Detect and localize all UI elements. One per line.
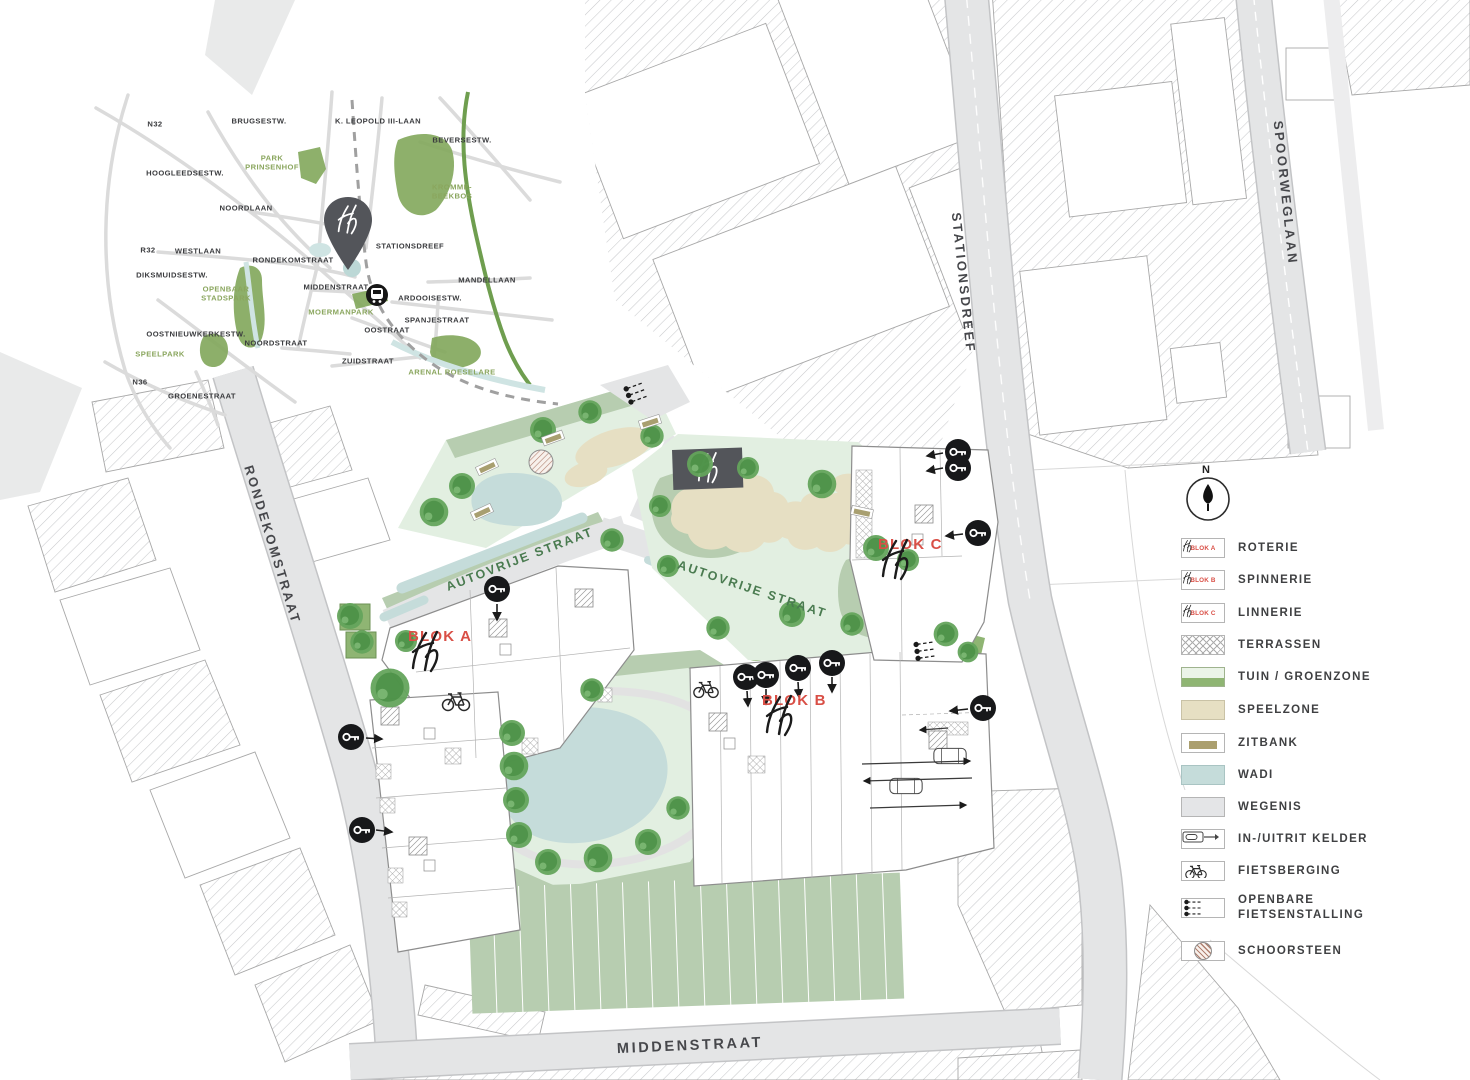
legend-item-terrassen: TERRASSEN: [1181, 635, 1322, 655]
legend-item-wadi: WADI: [1181, 765, 1274, 785]
inset-label: NOORDSTRAAT: [245, 338, 308, 347]
legend-swatch-terrassen: [1181, 635, 1225, 655]
logo-signature-icon: [762, 692, 798, 742]
inset-label: SPANJESTRAAT: [405, 315, 470, 324]
inset-label: MIDDENSTRAAT: [304, 282, 369, 291]
inset-label: N32: [147, 119, 162, 128]
legend-item-wegenis: WEGENIS: [1181, 797, 1302, 817]
inset-label: MANDELLAAN: [458, 275, 516, 284]
blok-c-label: BLOK C: [878, 536, 943, 553]
inset-label: BEVERSESTW.: [432, 135, 491, 144]
compass-icon: [1182, 466, 1234, 526]
inset-label: SPEELPARK: [135, 349, 184, 358]
inset-label: KROMME- BEEKBOS: [432, 183, 472, 202]
inset-label: N36: [132, 377, 147, 386]
key-entrance-icon: [970, 695, 996, 721]
garage-entry-icon: [1182, 830, 1222, 844]
legend-swatch-fietsberging: [1181, 861, 1225, 881]
logo-signature-icon: [878, 536, 914, 586]
legend-item-linnerie: BLOK C LINNERIE: [1181, 603, 1303, 623]
legend-swatch-tuin: [1181, 667, 1225, 687]
legend-swatch-speelzone: [1181, 700, 1225, 720]
inset-label: BRUGSESTW.: [231, 116, 286, 125]
legend-item-spinnerie: BLOK B SPINNERIE: [1181, 570, 1313, 590]
inset-label: PARK PRINSENHOF: [245, 154, 299, 173]
inset-label: GROENESTRAAT: [168, 391, 236, 400]
legend-item-tuin-groenzone: TUIN / GROENZONE: [1181, 667, 1371, 687]
inset-label: OPENBAAR STADSPARK: [201, 285, 251, 304]
legend-item-roterie: BLOK A ROTERIE: [1181, 538, 1299, 558]
legend-item-schoorsteen: SCHOORSTEEN: [1181, 941, 1342, 961]
inset-label: OOSTRAAT: [364, 325, 409, 334]
legend-swatch-blok-b: BLOK B: [1181, 570, 1225, 590]
inset-label: WESTLAAN: [175, 246, 221, 255]
inset-label: RONDEKOMSTRAAT: [253, 255, 334, 264]
legend-item-openbare-fietsenstalling: OPENBARE FIETSENSTALLING: [1181, 893, 1364, 923]
legend-swatch-schoorsteen: [1181, 941, 1225, 961]
legend-swatch-wegenis: [1181, 797, 1225, 817]
logo-signature-icon: [1182, 604, 1193, 619]
legend-item-speelzone: SPEELZONE: [1181, 700, 1320, 720]
inset-label: DIKSMUIDSESTW.: [136, 270, 208, 279]
key-entrance-icon: [753, 662, 779, 688]
logo-signature-icon: [1182, 571, 1193, 586]
bike-rack-icon: [1182, 899, 1208, 917]
legend-swatch-wadi: [1181, 765, 1225, 785]
site: [340, 365, 998, 1014]
inset-label: ARENAL ROESELARE: [408, 367, 495, 376]
inset-label: HOOGLEEDSESTW.: [146, 168, 224, 177]
legend-item-zitbank: ZITBANK: [1181, 733, 1298, 753]
legend-swatch-fietsenstalling: [1181, 898, 1225, 918]
inset-label: ZUIDSTRAAT: [342, 356, 394, 365]
key-entrance-icon: [965, 520, 991, 546]
inset-label: ARDOOISESTW.: [398, 293, 462, 302]
legend-swatch-kelder: [1181, 829, 1225, 849]
legend-swatch-blok-a: BLOK A: [1181, 538, 1225, 558]
inset-label: K. LEOPOLD III-LAAN: [335, 116, 421, 125]
legend-item-in-uitrit-kelder: IN-/UITRIT KELDER: [1181, 829, 1368, 849]
inset-label: R32: [140, 245, 155, 254]
inset-label: STATIONSDREEF: [376, 241, 444, 250]
inset-label: NOORDLAAN: [220, 203, 273, 212]
blok-a-label: BLOK A: [408, 628, 472, 645]
legend-swatch-blok-c: BLOK C: [1181, 603, 1225, 623]
key-entrance-icon: [819, 650, 845, 676]
legend-swatch-zitbank: [1181, 733, 1225, 753]
site-plan-page: { "inset": { "labels": ["N32","BRUGSESTW…: [0, 0, 1470, 1080]
blok-b-label: BLOK B: [762, 692, 827, 709]
legend-item-fietsberging: FIETSBERGING: [1181, 861, 1341, 881]
inset-label: MOERMANPARK: [308, 307, 373, 316]
key-entrance-icon: [349, 817, 375, 843]
inset-label: OOSTNIEUWKERKESTW.: [146, 329, 245, 338]
logo-signature-icon: [1182, 539, 1193, 554]
bicycle-icon: [1182, 862, 1210, 878]
train-station-icon: [366, 284, 388, 306]
key-entrance-icon: [945, 455, 971, 481]
key-entrance-icon: [785, 655, 811, 681]
key-entrance-icon: [338, 724, 364, 750]
logo-signature-icon: [408, 628, 444, 678]
